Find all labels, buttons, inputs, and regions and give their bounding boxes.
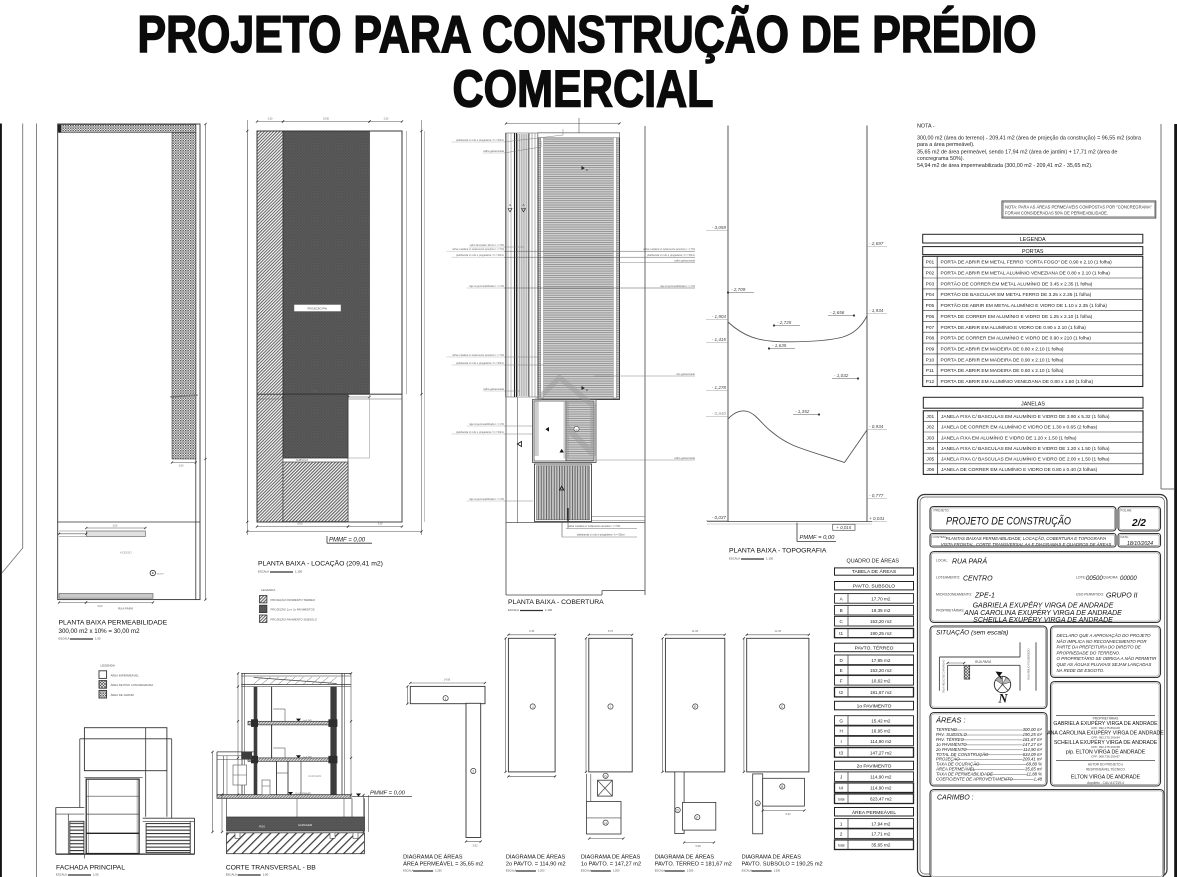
svg-text:3,92: 3,92 bbox=[472, 844, 478, 848]
svg-text:t1: t1 bbox=[839, 631, 843, 636]
svg-text:PORTA DE ABRIR EM MADEIRA DE 0: PORTA DE ABRIR EM MADEIRA DE 0.90 x 2.10… bbox=[941, 357, 1064, 363]
svg-text:1:50: 1:50 bbox=[263, 873, 269, 877]
svg-text:ÁREA DE PISO CONCREGRAMA: ÁREA DE PISO CONCREGRAMA bbox=[111, 683, 154, 687]
svg-text:total: total bbox=[838, 798, 845, 802]
svg-text:total: total bbox=[838, 844, 845, 848]
svg-text:RUA PARÁ: RUA PARÁ bbox=[975, 660, 991, 664]
svg-text:- 0,037: - 0,037 bbox=[712, 515, 727, 520]
svg-text:GRUPO II: GRUPO II bbox=[1106, 593, 1138, 600]
svg-text:DIAGRAMA DE ÁREAS: DIAGRAMA DE ÁREAS bbox=[742, 854, 802, 861]
svg-text:2o PAVTO. = 114,90 m2: 2o PAVTO. = 114,90 m2 bbox=[506, 862, 566, 868]
svg-text:FACHADA PRINCIPAL: FACHADA PRINCIPAL bbox=[56, 865, 125, 872]
svg-text:PLANTA BAIXA - TOPOGRAFIA: PLANTA BAIXA - TOPOGRAFIA bbox=[729, 548, 827, 555]
svg-text:PROPRIEDADE DO TERRENO.: PROPRIEDADE DO TERRENO. bbox=[1057, 650, 1121, 655]
svg-text:A: A bbox=[509, 203, 511, 207]
svg-text:ÁREA IMPERMEÁVEL: ÁREA IMPERMEÁVEL bbox=[111, 673, 140, 677]
svg-text:- 2,656: - 2,656 bbox=[830, 310, 845, 315]
svg-text:NOTA -: NOTA - bbox=[917, 124, 935, 130]
svg-text:P05: P05 bbox=[926, 303, 935, 309]
svg-text:RUA HELIO DE CARVALHO: RUA HELIO DE CARVALHO bbox=[942, 660, 946, 693]
svg-text:P12: P12 bbox=[926, 379, 935, 385]
svg-text:17,94 m2: 17,94 m2 bbox=[871, 821, 891, 826]
svg-text:LOTEAMENTO:: LOTEAMENTO: bbox=[936, 576, 960, 580]
svg-text:ESCALA: ESCALA bbox=[581, 869, 592, 873]
svg-text:J05: J05 bbox=[926, 457, 934, 463]
svg-text:D: D bbox=[586, 168, 588, 172]
svg-text:J01: J01 bbox=[926, 414, 934, 420]
svg-text:P08: P08 bbox=[926, 336, 935, 342]
svg-text:PISO: PISO bbox=[259, 825, 265, 829]
svg-text:SITUAÇÃO (sem escala): SITUAÇÃO (sem escala) bbox=[936, 628, 1008, 637]
svg-text:laje impermeabilizada / i = 2%: laje impermeabilizada / i = 2% bbox=[469, 497, 504, 501]
svg-text:6,92: 6,92 bbox=[785, 812, 791, 816]
svg-text:para a área permeável).: para a área permeável). bbox=[917, 142, 975, 148]
svg-text:AUTOR DO PROJETO e: AUTOR DO PROJETO e bbox=[1088, 762, 1124, 766]
svg-text:ESCALA: ESCALA bbox=[226, 873, 237, 877]
svg-text:QUADRO DE ÁREAS: QUADRO DE ÁREAS bbox=[847, 558, 900, 565]
svg-text:3,30: 3,30 bbox=[268, 118, 273, 121]
svg-text:platibanda c/ rufo e pingadeir: platibanda c/ rufo e pingadeira / h = 50… bbox=[647, 253, 695, 257]
svg-text:PORTA DE CORRER EM ALUMÍNIO E: PORTA DE CORRER EM ALUMÍNIO E VIDRO DE 0… bbox=[941, 335, 1092, 342]
svg-text:JANELA FIXA C/ BASCULAS EM ALU: JANELA FIXA C/ BASCULAS EM ALUMÍNIO E VI… bbox=[941, 445, 1110, 452]
svg-text:PLANTA BAIXA - COBERTURA: PLANTA BAIXA - COBERTURA bbox=[508, 599, 604, 606]
svg-text:147,27 m2: 147,27 m2 bbox=[870, 750, 892, 755]
svg-text:300,00 m2 x 10% = 30,00 m2: 300,00 m2 x 10% = 30,00 m2 bbox=[59, 628, 141, 635]
svg-text:H: H bbox=[840, 729, 843, 734]
svg-text:00500: 00500 bbox=[1086, 576, 1103, 582]
svg-text:CENTRO: CENTRO bbox=[963, 576, 993, 583]
svg-text:- 1,278: - 1,278 bbox=[712, 385, 727, 390]
svg-text:Arquiteto - CAU A17219-4: Arquiteto - CAU A17219-4 bbox=[1087, 781, 1124, 785]
svg-text:2: 2 bbox=[472, 770, 474, 774]
svg-text:t4: t4 bbox=[839, 786, 843, 791]
svg-text:laje impermeabilizada / i = 2%: laje impermeabilizada / i = 2% bbox=[660, 284, 695, 288]
svg-text:P02: P02 bbox=[926, 271, 935, 277]
svg-text:35,65 m2: 35,65 m2 bbox=[871, 843, 891, 848]
svg-text:USO PERMITIDO:: USO PERMITIDO: bbox=[1076, 593, 1104, 597]
svg-text:P11: P11 bbox=[926, 368, 935, 374]
svg-text:- 1,415: - 1,415 bbox=[712, 337, 727, 342]
svg-text:calha galvanizada: calha galvanizada bbox=[674, 259, 695, 263]
svg-text:JANELA FIXA C/ BASCULAS EM ALU: JANELA FIXA C/ BASCULAS EM ALUMÍNIO E VI… bbox=[941, 456, 1110, 463]
svg-text:8,70: 8,70 bbox=[608, 629, 614, 633]
svg-text:PROJEÇÃO PAVIMENTO SUBSOLO: PROJEÇÃO PAVIMENTO SUBSOLO bbox=[271, 616, 318, 621]
svg-text:E: E bbox=[840, 668, 843, 673]
svg-text:P04: P04 bbox=[926, 292, 935, 298]
svg-text:(0,00 PMMF): (0,00 PMMF) bbox=[295, 792, 311, 796]
svg-text:DIAGRAMA DE ÁREAS: DIAGRAMA DE ÁREAS bbox=[581, 854, 641, 861]
svg-text:P10: P10 bbox=[926, 357, 935, 363]
svg-text:concregrama 50%).: concregrama 50%). bbox=[917, 156, 964, 162]
svg-text:- 1,934: - 1,934 bbox=[869, 308, 884, 313]
svg-text:J04: J04 bbox=[926, 446, 934, 452]
svg-text:I: I bbox=[841, 739, 842, 744]
svg-text:5,00: 5,00 bbox=[98, 605, 103, 608]
svg-text:CORTE TRANSVERSAL - BB: CORTE TRANSVERSAL - BB bbox=[226, 865, 317, 872]
svg-text:LOTE:: LOTE: bbox=[1076, 576, 1086, 580]
svg-text:- 2,709: - 2,709 bbox=[731, 287, 746, 292]
svg-text:ÁREAS :: ÁREAS : bbox=[935, 716, 966, 725]
svg-text:9,35: 9,35 bbox=[529, 629, 535, 633]
svg-text:t2: t2 bbox=[839, 690, 843, 695]
svg-text:1o PAVIMENTO: 1o PAVIMENTO bbox=[857, 704, 892, 710]
svg-text:D: D bbox=[576, 428, 578, 432]
svg-text:3,30: 3,30 bbox=[378, 523, 383, 526]
svg-text:ACESSO: ACESSO bbox=[120, 551, 132, 555]
svg-text:GABRIELA EXUPÉRY VIRGA DE ANDR: GABRIELA EXUPÉRY VIRGA DE ANDRADE bbox=[973, 601, 1114, 610]
svg-text:- 0,840: - 0,840 bbox=[712, 411, 727, 416]
svg-text:300,00 m2 (área do terreno) -: 300,00 m2 (área do terreno) - 209,41 m2 … bbox=[917, 136, 1141, 142]
svg-text:JANELA FIXA C/ BASCULAS EM ALU: JANELA FIXA C/ BASCULAS EM ALUMÍNIO E VI… bbox=[941, 413, 1110, 420]
svg-text:CPF: 008.736.290-87: CPF: 008.736.290-87 bbox=[1091, 754, 1120, 758]
svg-text:12,45: 12,45 bbox=[775, 629, 782, 633]
svg-text:3,00: 3,00 bbox=[113, 525, 118, 528]
svg-text:2: 2 bbox=[840, 832, 843, 837]
svg-text:10,50: 10,50 bbox=[323, 118, 330, 121]
svg-text:14,95: 14,95 bbox=[444, 678, 451, 682]
svg-text:00000: 00000 bbox=[1120, 576, 1137, 582]
svg-text:calha galvanizada: calha galvanizada bbox=[674, 456, 695, 460]
svg-text:NA REDE DE ESGOTO.: NA REDE DE ESGOTO. bbox=[1057, 668, 1105, 673]
svg-text:calha galvanizada: calha galvanizada bbox=[483, 149, 504, 153]
svg-text:PROJEÇÃO PAVIMENTO TÉRREO: PROJEÇÃO PAVIMENTO TÉRREO bbox=[271, 597, 316, 602]
svg-text:DIAGRAMA DE ÁREAS: DIAGRAMA DE ÁREAS bbox=[506, 854, 566, 861]
svg-text:laje impermeabilizada / i = 2%: laje impermeabilizada / i = 2% bbox=[469, 422, 504, 426]
svg-text:platibanda c/ rufo e pingadeir: platibanda c/ rufo e pingadeira / h = 50… bbox=[577, 533, 625, 537]
svg-text:NÃO IMPLICA NO RECONHECIMENT: NÃO IMPLICA NO RECONHECIMENTO POR bbox=[1057, 639, 1148, 644]
svg-text:ESCALA: ESCALA bbox=[258, 570, 269, 574]
svg-text:1:200: 1:200 bbox=[687, 869, 694, 873]
svg-text:G: G bbox=[839, 718, 843, 723]
svg-text:ESCALA: ESCALA bbox=[59, 637, 70, 641]
svg-text:ESCALA: ESCALA bbox=[56, 873, 67, 877]
svg-text:1:100: 1:100 bbox=[295, 570, 302, 574]
svg-text:ANA CAROLINA EXUPÉRY VIRGA DE: ANA CAROLINA EXUPÉRY VIRGA DE ANDRADE bbox=[963, 608, 1122, 617]
svg-text:6,60: 6,60 bbox=[313, 390, 318, 393]
svg-text:11,90: 11,90 bbox=[692, 629, 699, 633]
svg-text:PORTAS: PORTAS bbox=[1022, 249, 1044, 255]
svg-text:PROJETO:: PROJETO: bbox=[934, 509, 950, 513]
svg-text:+ 0,015: + 0,015 bbox=[836, 525, 851, 530]
svg-text:5,98: 5,98 bbox=[695, 844, 701, 848]
svg-text:1:200: 1:200 bbox=[613, 869, 620, 873]
svg-text:17,85 m2: 17,85 m2 bbox=[871, 658, 891, 663]
svg-text:CONTEM:: CONTEM: bbox=[933, 535, 947, 539]
svg-text:CPF: 092.275.290-58: CPF: 092.275.290-58 bbox=[1091, 745, 1120, 749]
svg-text:GARAGEM: GARAGEM bbox=[308, 774, 321, 778]
svg-text:PLANTA BAIXA PERMEABILIDADE: PLANTA BAIXA PERMEABILIDADE bbox=[59, 620, 168, 627]
svg-text:B: B bbox=[781, 785, 783, 789]
svg-text:QUADRA:: QUADRA: bbox=[1103, 576, 1119, 580]
svg-text:PORTÃO DE ABRIR EM METAL ALUMÍ: PORTÃO DE ABRIR EM METAL ALUMÍNIO E VIDR… bbox=[941, 302, 1108, 309]
svg-text:J03: J03 bbox=[926, 435, 934, 441]
svg-text:1: 1 bbox=[445, 697, 447, 701]
svg-text:ESCALA: ESCALA bbox=[729, 557, 740, 561]
svg-text:RUA PARÁ: RUA PARÁ bbox=[118, 607, 133, 611]
svg-text:platibanda c/ rufo e pingadeir: platibanda c/ rufo e pingadeira / h = 50… bbox=[456, 138, 504, 142]
svg-text:GARAGEM: GARAGEM bbox=[298, 823, 313, 827]
svg-text:18/10/2024: 18/10/2024 bbox=[1127, 541, 1153, 547]
svg-text:telha metalica c/ isolamento a: telha metalica c/ isolamento acustico / … bbox=[569, 524, 621, 528]
svg-text:JANELA DE CORRER EM ALUMÍNIO E: JANELA DE CORRER EM ALUMÍNIO E VIDRO DE … bbox=[941, 466, 1098, 473]
svg-text:PMMF = 0,00: PMMF = 0,00 bbox=[370, 791, 406, 797]
svg-text:10,62 m2: 10,62 m2 bbox=[871, 678, 891, 683]
svg-text:PAVTO. SUBSOLO: PAVTO. SUBSOLO bbox=[853, 584, 895, 590]
svg-text:1:50: 1:50 bbox=[93, 873, 99, 877]
svg-text:DIAGRAMA DE ÁREAS: DIAGRAMA DE ÁREAS bbox=[655, 854, 715, 861]
svg-text:F: F bbox=[840, 678, 843, 683]
svg-text:CPF: 092.275.290-84: CPF: 092.275.290-84 bbox=[1091, 735, 1120, 739]
svg-text:PROJETO DE CONSTRUÇÃO: PROJETO DE CONSTRUÇÃO bbox=[946, 515, 1072, 528]
svg-text:1:100: 1:100 bbox=[545, 608, 552, 612]
svg-text:O PROPRIETÁRIO SE OBRIGA A NÃO: O PROPRIETÁRIO SE OBRIGA A NÃO PERMITIR bbox=[1057, 656, 1158, 661]
svg-text:3,30: 3,30 bbox=[384, 118, 389, 121]
svg-text:E: E bbox=[694, 705, 696, 709]
svg-text:MICROZONEAMENTO:: MICROZONEAMENTO: bbox=[936, 593, 972, 597]
svg-text:vidro laminado 10mm / i = 5%: vidro laminado 10mm / i = 5% bbox=[470, 243, 505, 247]
svg-text:+ 0,031: + 0,031 bbox=[869, 516, 885, 521]
svg-text:ESCALA: ESCALA bbox=[506, 869, 517, 873]
svg-text:NOTA: PARA AS ÁREAS PERMEÁVEIS: NOTA: PARA AS ÁREAS PERMEÁVEIS COMPOSTAS… bbox=[1005, 205, 1152, 210]
svg-text:ESCALA: ESCALA bbox=[403, 869, 414, 873]
svg-text:DIAGRAMA DE ÁREAS: DIAGRAMA DE ÁREAS bbox=[403, 854, 463, 861]
svg-text:(+3,00): (+3,00) bbox=[303, 755, 312, 759]
svg-text:F: F bbox=[696, 816, 698, 820]
svg-text:- 1,032: - 1,032 bbox=[834, 373, 849, 378]
svg-text:153,20 m2: 153,20 m2 bbox=[870, 619, 892, 624]
svg-text:telha metalica c/ isolamento a: telha metalica c/ isolamento acustico / … bbox=[643, 247, 695, 251]
svg-text:PROJETO PARA CONSTRUÇÃO DE PRÉ: PROJETO PARA CONSTRUÇÃO DE PRÉDIO bbox=[138, 5, 1037, 63]
svg-text:ÁREA PERMEÁVEL = 35,65 m2: ÁREA PERMEÁVEL = 35,65 m2 bbox=[403, 861, 483, 868]
svg-text:ESCALA: ESCALA bbox=[508, 608, 519, 612]
svg-text:QUE AS ÁGUAS PLUVIAIS SEJAM L: QUE AS ÁGUAS PLUVIAIS SEJAM LANÇADAS bbox=[1057, 662, 1152, 667]
svg-text:PORTÃO DE BASCULAR EM METAL FE: PORTÃO DE BASCULAR EM METAL FERRO DE 3.2… bbox=[941, 291, 1092, 298]
svg-text:SUBSOLO: SUBSOLO bbox=[296, 459, 308, 462]
svg-text:114,90 m2: 114,90 m2 bbox=[870, 786, 892, 791]
svg-text:PROPRIETÁRIAS: PROPRIETÁRIAS bbox=[1093, 716, 1119, 720]
svg-text:PORTA DE ABRIR EM ALUMÍNIO E V: PORTA DE ABRIR EM ALUMÍNIO E VIDRO DE 0.… bbox=[941, 324, 1087, 331]
svg-text:PROJEÇÃO 1o e 2o PAVIMENTOS: PROJEÇÃO 1o e 2o PAVIMENTOS bbox=[271, 607, 315, 612]
svg-text:- 3,059: - 3,059 bbox=[712, 225, 727, 230]
svg-text:- 1,352: - 1,352 bbox=[795, 409, 810, 414]
svg-text:VISTA FRONTAL, CORTE TRANSVERS: VISTA FRONTAL, CORTE TRANSVERSAL AA E DI… bbox=[941, 542, 1112, 547]
svg-text:PORTA DE ABRIR EM MADEIRA DE 0: PORTA DE ABRIR EM MADEIRA DE 0.80 x 2.10… bbox=[941, 347, 1064, 353]
svg-text:PORTA DE ABRIR EM ALUMÍNIO VEN: PORTA DE ABRIR EM ALUMÍNIO VENEZIANA DE … bbox=[941, 378, 1094, 385]
svg-text:platibanda c/ rufo e pingadeir: platibanda c/ rufo e pingadeira / h = 50… bbox=[456, 430, 504, 434]
svg-text:P06: P06 bbox=[926, 314, 935, 320]
svg-text:PAVTO. SUBSOLO = 190,25 m2: PAVTO. SUBSOLO = 190,25 m2 bbox=[742, 862, 823, 868]
svg-text:platibanda c/ rufo e pingadeir: platibanda c/ rufo e pingadeira / h = 50… bbox=[456, 253, 504, 257]
svg-text:1: 1 bbox=[840, 821, 843, 826]
svg-text:PLANTA BAIXA - LOCAÇÃO (209,41: PLANTA BAIXA - LOCAÇÃO (209,41 m2) bbox=[258, 559, 383, 568]
svg-text:JANELA DE CORRER EM ALUMÍNIO E: JANELA DE CORRER EM ALUMÍNIO E VIDRO DE … bbox=[941, 424, 1098, 431]
svg-text:1:200: 1:200 bbox=[435, 869, 442, 873]
svg-text:1:50: 1:50 bbox=[95, 637, 101, 641]
svg-text:1:100: 1:100 bbox=[766, 557, 773, 561]
svg-text:I: I bbox=[610, 705, 611, 709]
svg-text:CPF: 092.275.890-08: CPF: 092.275.890-08 bbox=[1091, 726, 1120, 730]
svg-text:t3: t3 bbox=[839, 750, 843, 755]
svg-text:telha metalica c/ isolamento a: telha metalica c/ isolamento acustico / … bbox=[452, 247, 504, 251]
svg-text:ELTON VIRGA DE ANDRADE: ELTON VIRGA DE ANDRADE bbox=[1071, 775, 1141, 781]
svg-text:RUA PARÁ: RUA PARÁ bbox=[952, 557, 987, 566]
svg-text:190,25 m2: 190,25 m2 bbox=[870, 631, 892, 636]
svg-text:PORTA DE ABRIR EM METAL FERRO: PORTA DE ABRIR EM METAL FERRO "CORTA FOG… bbox=[941, 260, 1113, 266]
svg-text:DATA:: DATA: bbox=[1121, 535, 1130, 539]
svg-text:J06: J06 bbox=[926, 467, 934, 473]
svg-text:- 1,635: - 1,635 bbox=[772, 343, 787, 348]
svg-text:platibanda c/ rufo e pingadeir: platibanda c/ rufo e pingadeira / h = 50… bbox=[456, 361, 504, 365]
svg-text:114,90 m2: 114,90 m2 bbox=[870, 739, 892, 744]
svg-text:16,95 m2: 16,95 m2 bbox=[871, 729, 891, 734]
svg-text:PAVTO. TÉRREO: PAVTO. TÉRREO bbox=[855, 645, 894, 652]
svg-text:ÁREA DE JARDIM: ÁREA DE JARDIM bbox=[111, 693, 135, 697]
svg-text:rufo galvanizado: rufo galvanizado bbox=[676, 372, 696, 376]
svg-text:TABELA DE ÁREAS: TABELA DE ÁREAS bbox=[852, 568, 897, 575]
svg-text:181,67 m2: 181,67 m2 bbox=[870, 690, 892, 695]
svg-text:PMMF = 0,00: PMMF = 0,00 bbox=[800, 535, 836, 541]
svg-text:calha galvanizada: calha galvanizada bbox=[483, 387, 504, 391]
svg-text:COEFICIENTE DE APROVEITAMENTO: COEFICIENTE DE APROVEITAMENTO bbox=[936, 777, 1013, 782]
svg-text:LOCAL:: LOCAL: bbox=[936, 559, 948, 563]
svg-text:D: D bbox=[586, 388, 588, 392]
svg-text:ESCALA: ESCALA bbox=[655, 869, 666, 873]
svg-text:54,94 m2 de área impermeabiliz: 54,94 m2 de área impermeabilizada (300,0… bbox=[917, 163, 1093, 169]
svg-text:P01: P01 bbox=[926, 260, 935, 266]
svg-text:153,20 m2: 153,20 m2 bbox=[870, 668, 892, 673]
svg-text:arvore: arvore bbox=[157, 573, 164, 576]
svg-text:PORTA DE ABRIR EM MADEIRA DE 0: PORTA DE ABRIR EM MADEIRA DE 0.60 x 2.10… bbox=[941, 368, 1064, 374]
svg-text:FORAM CONSIDERADAS 50% DE PERM: FORAM CONSIDERADAS 50% DE PERMEABILIDADE… bbox=[1005, 211, 1108, 216]
svg-text:PLANTAS BAIXAS PERMEABILIDADE,: PLANTAS BAIXAS PERMEABILIDADE, LOCAÇÃO, … bbox=[946, 536, 1107, 541]
svg-text:PARTE DA PREFEITURA DO DIR: PARTE DA PREFEITURA DO DIREITO DE bbox=[1057, 645, 1141, 650]
svg-text:PMMF = 0,00: PMMF = 0,00 bbox=[329, 538, 366, 544]
svg-text:17,71 m2: 17,71 m2 bbox=[871, 832, 891, 837]
svg-text:CARIMBO :: CARIMBO : bbox=[937, 795, 974, 802]
svg-text:B: B bbox=[840, 608, 843, 613]
svg-text:J: J bbox=[840, 775, 842, 780]
svg-text:623,47 m2: 623,47 m2 bbox=[870, 797, 892, 802]
svg-text:35,65 m2 de área permeável, se: 35,65 m2 de área permeável, sendo 17,94 … bbox=[917, 150, 1117, 156]
svg-text:114,90 m2: 114,90 m2 bbox=[870, 775, 892, 780]
svg-text:telha metalica c/ isolamento a: telha metalica c/ isolamento acustico / … bbox=[452, 353, 504, 357]
svg-text:PORTA DE CORRER EM ALUMÍNIO E: PORTA DE CORRER EM ALUMÍNIO E VIDRO DE 1… bbox=[941, 313, 1093, 320]
svg-text:LEGENDA: LEGENDA bbox=[1020, 237, 1046, 243]
svg-text:19,35 m2: 19,35 m2 bbox=[871, 608, 891, 613]
svg-text:1:200: 1:200 bbox=[774, 869, 781, 873]
svg-text:laje impermeabilizada / i = 2%: laje impermeabilizada / i = 2% bbox=[469, 284, 504, 288]
svg-text:JANELA FIXA EM ALUMÍNIO E VIDR: JANELA FIXA EM ALUMÍNIO E VIDRO DE 1.20 … bbox=[941, 434, 1077, 441]
svg-text:6,60: 6,60 bbox=[298, 523, 303, 526]
svg-text:PAVTO. TÉRREO = 181,67 m2: PAVTO. TÉRREO = 181,67 m2 bbox=[655, 861, 732, 868]
svg-text:A: A bbox=[522, 203, 524, 207]
svg-text:FOLHA:: FOLHA: bbox=[1121, 509, 1133, 513]
svg-text:ZPE-1: ZPE-1 bbox=[974, 593, 995, 600]
svg-text:J02: J02 bbox=[926, 425, 934, 431]
svg-text:PORTA DE ABRIR EM METAL ALUMÍN: PORTA DE ABRIR EM METAL ALUMÍNIO VENEZIA… bbox=[941, 270, 1111, 277]
svg-text:RESPONSÁVEL TÉCNICO: RESPONSÁVEL TÉCNICO bbox=[1086, 766, 1125, 771]
svg-text:15,42 m2: 15,42 m2 bbox=[871, 718, 891, 723]
svg-text:1o PAVTO. = 147,27 m2: 1o PAVTO. = 147,27 m2 bbox=[581, 862, 641, 868]
svg-text:JANELAS: JANELAS bbox=[1021, 401, 1045, 407]
svg-text:DECLARO QUE A APROVAÇÃO DO PR: DECLARO QUE A APROVAÇÃO DO PROJETO bbox=[1057, 633, 1152, 638]
svg-text:N: N bbox=[997, 692, 1008, 706]
svg-text:- 2,725: - 2,725 bbox=[777, 320, 792, 325]
svg-text:SCHEILLA EXUPÉRY VIRGA DE ANDR: SCHEILLA EXUPÉRY VIRGA DE ANDRADE bbox=[973, 615, 1113, 624]
svg-text:17,70 m2: 17,70 m2 bbox=[871, 596, 891, 601]
svg-text:ESCALA: ESCALA bbox=[742, 869, 753, 873]
svg-text:2/2: 2/2 bbox=[1131, 518, 1146, 529]
svg-text:2o PAVIMENTO: 2o PAVIMENTO bbox=[857, 764, 892, 770]
svg-text:ÁREA PERMEÁVEL: ÁREA PERMEÁVEL bbox=[852, 809, 897, 816]
svg-text:1:200: 1:200 bbox=[538, 869, 545, 873]
svg-text:3,00: 3,00 bbox=[179, 465, 184, 468]
svg-text:- 0,934: - 0,934 bbox=[869, 424, 884, 429]
svg-text:PROPRIETÁRIAS:: PROPRIETÁRIAS: bbox=[936, 609, 965, 613]
svg-text:- 2,697: - 2,697 bbox=[869, 241, 884, 246]
svg-text:- 1,904: - 1,904 bbox=[712, 314, 727, 319]
svg-text:(+6,00): (+6,00) bbox=[303, 718, 312, 722]
svg-text:- 0,777: - 0,777 bbox=[869, 493, 884, 498]
svg-text:P09: P09 bbox=[926, 347, 935, 353]
svg-text:LEGENDA: LEGENDA bbox=[261, 588, 275, 592]
svg-text:P07: P07 bbox=[926, 325, 935, 331]
svg-text:P03: P03 bbox=[926, 281, 935, 287]
svg-text:COMERCIAL: COMERCIAL bbox=[453, 59, 714, 117]
svg-text:RUA ABILIO FIGUEIREDO: RUA ABILIO FIGUEIREDO bbox=[1027, 648, 1031, 679]
svg-text:PORTÃO DE CORRER EM METAL ALUM: PORTÃO DE CORRER EM METAL ALUMÍNIO DE 3.… bbox=[941, 280, 1093, 287]
svg-text:1,48: 1,48 bbox=[1034, 777, 1043, 782]
svg-text:LEGENDA: LEGENDA bbox=[101, 664, 115, 668]
